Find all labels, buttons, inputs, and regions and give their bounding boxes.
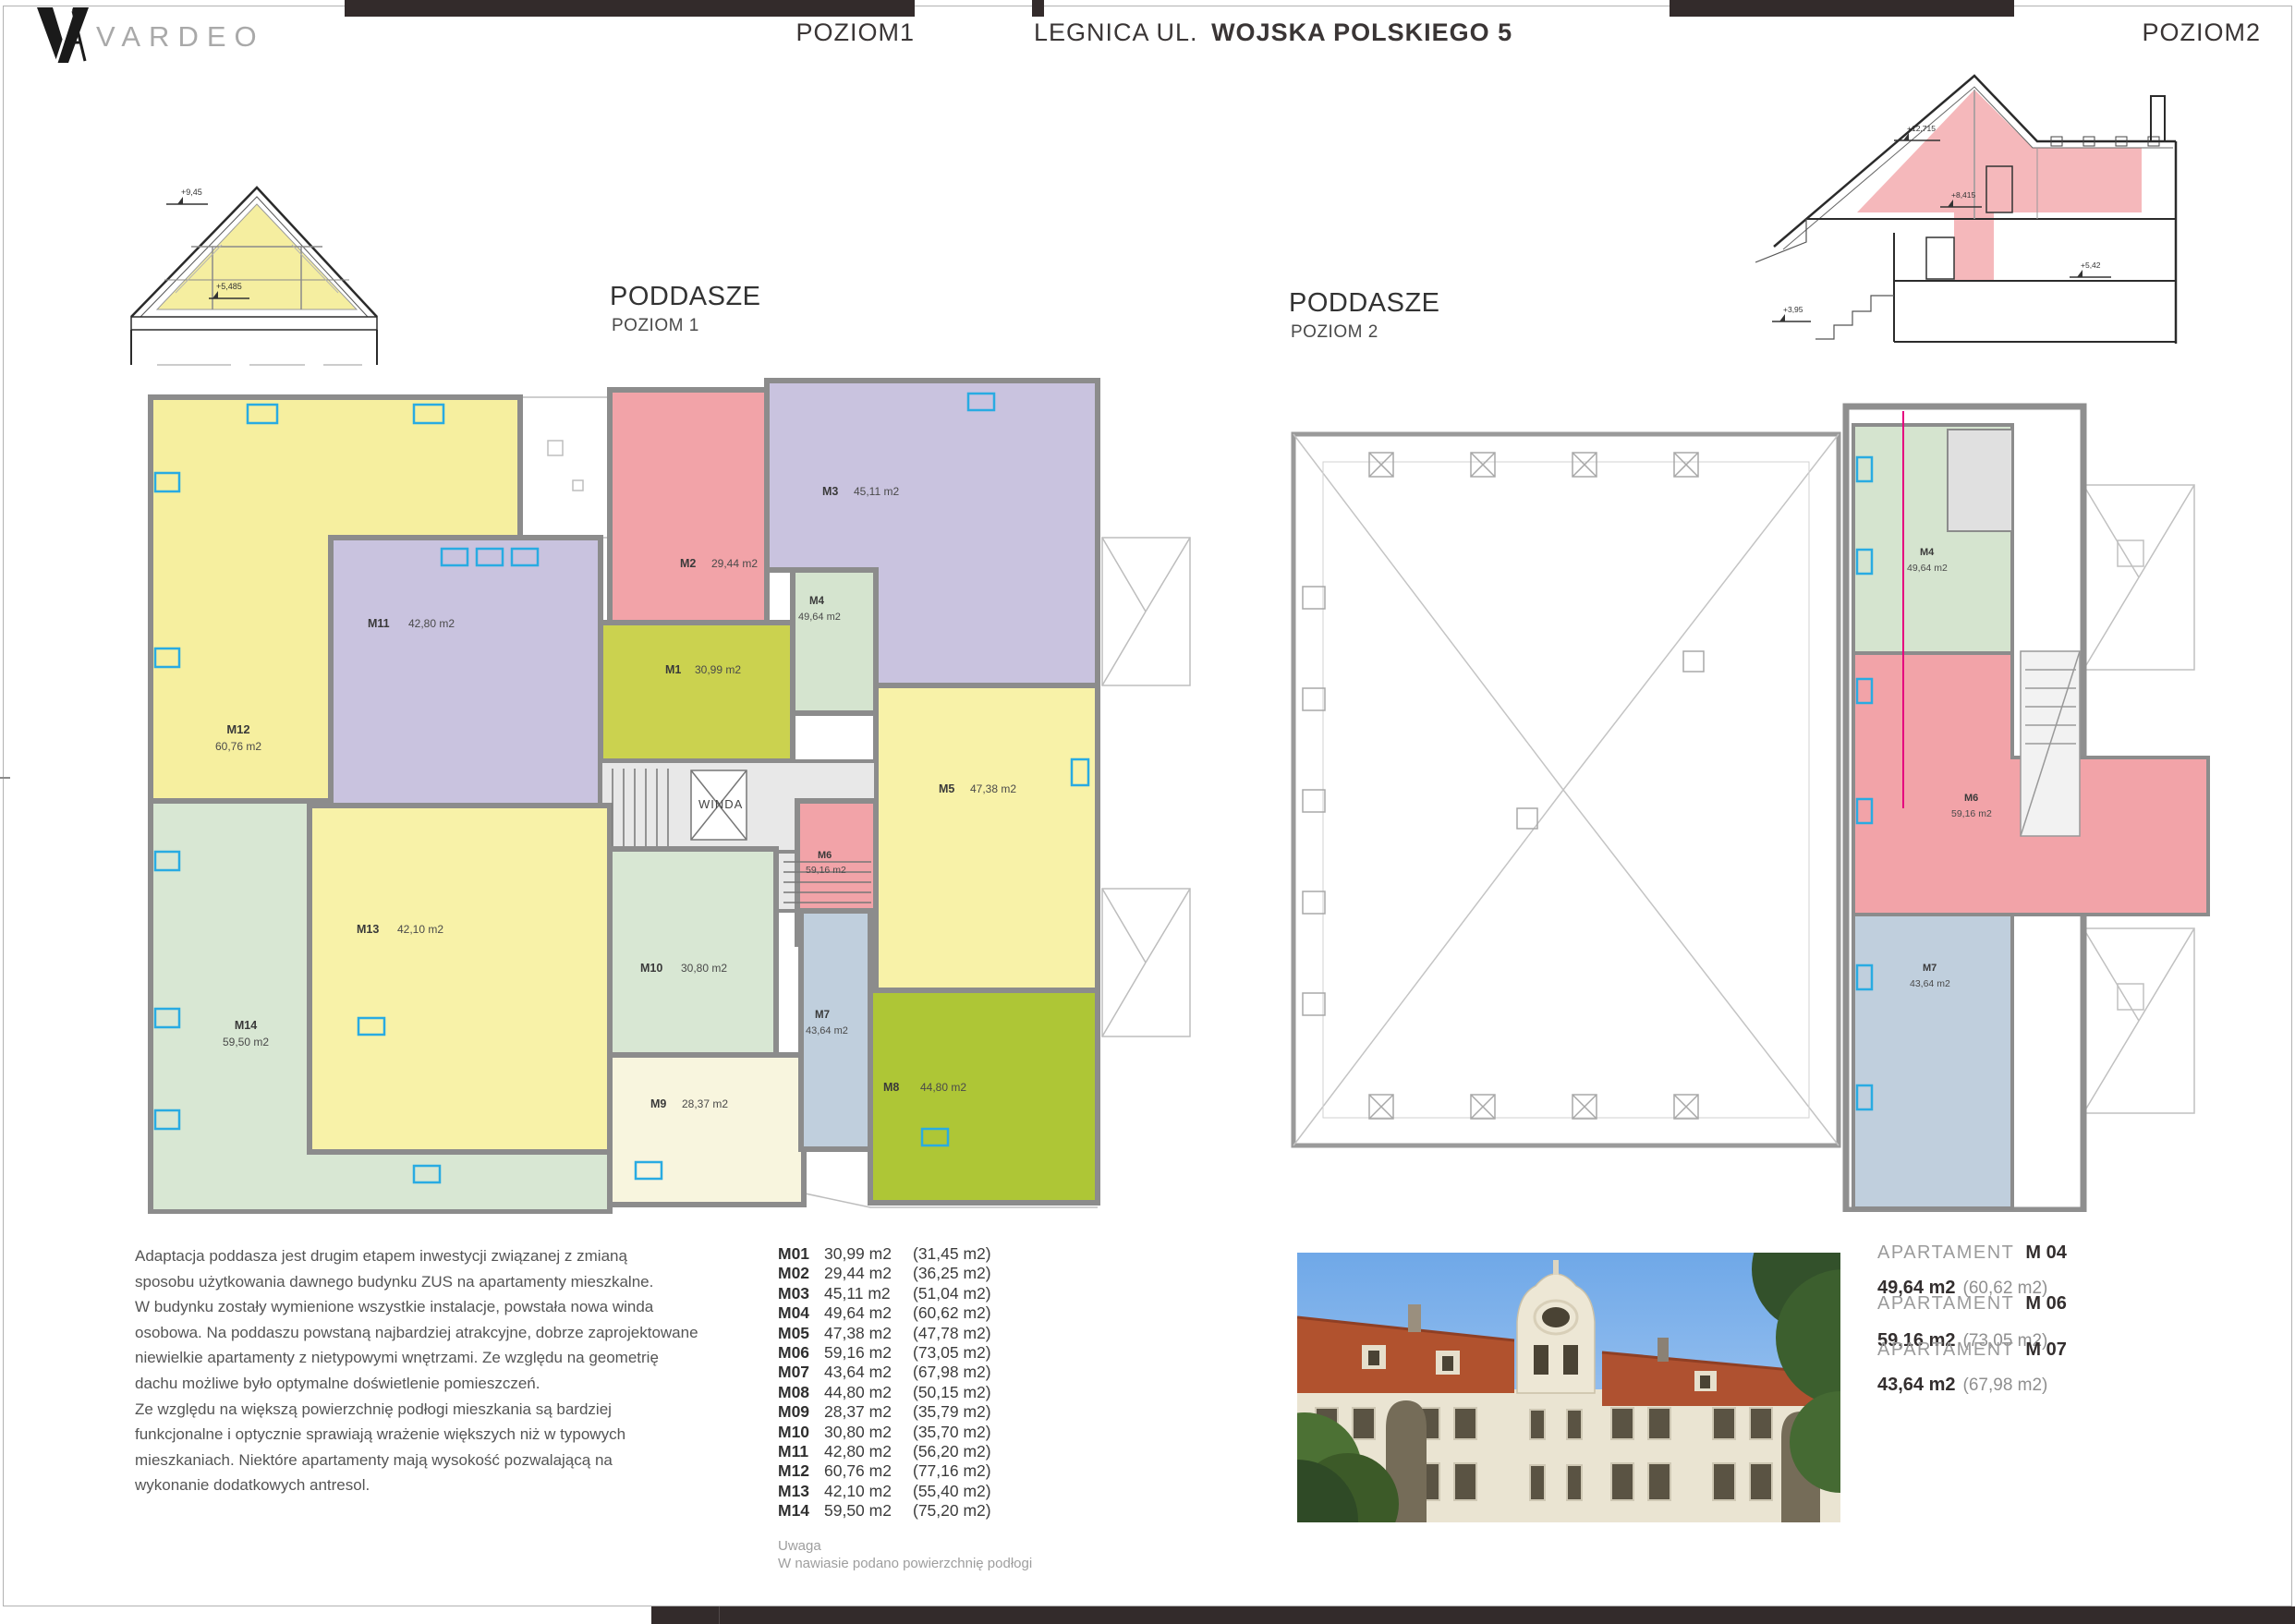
- brand-text: VARDEO: [96, 20, 265, 54]
- building-photo: [1297, 1253, 1840, 1522]
- plan1-subtitle: POZIOM 1: [612, 316, 699, 336]
- svg-text:M12: M12: [226, 722, 249, 736]
- svg-text:29,44 m2: 29,44 m2: [711, 557, 758, 570]
- header-bar-right: [1670, 0, 2014, 17]
- unit-row: M0229,44 m2(36,25 m2): [778, 1264, 991, 1283]
- elevation-label: +9,45: [181, 188, 202, 197]
- svg-text:60,76 m2: 60,76 m2: [215, 740, 261, 753]
- svg-text:M9: M9: [650, 1097, 666, 1110]
- page: VARDEO POZIOM1 LEGNICA UL. WOJSKA POLSKI…: [0, 0, 2295, 1624]
- svg-text:M7: M7: [815, 1010, 830, 1021]
- svg-text:30,80 m2: 30,80 m2: [681, 962, 727, 975]
- unit-row: M1142,80 m2(56,20 m2): [778, 1442, 991, 1461]
- level-right-label: POZIOM2: [2076, 18, 2261, 47]
- unit-row: M0449,64 m2(60,62 m2): [778, 1303, 991, 1323]
- plan1-title: PODDASZE: [610, 282, 761, 312]
- unit-row: M1260,76 m2(77,16 m2): [778, 1461, 991, 1481]
- svg-text:43,64 m2: 43,64 m2: [1910, 978, 1950, 989]
- svg-text:M5: M5: [939, 782, 954, 795]
- featured-area: 43,64 m2(67,98 m2): [1877, 1375, 2047, 1396]
- unit-row: M0844,80 m2(50,15 m2): [778, 1383, 991, 1402]
- level-left-label: POZIOM1: [730, 18, 915, 47]
- svg-text:M13: M13: [357, 923, 379, 936]
- apartment-m7-l2: [1853, 915, 2012, 1208]
- elevation-label: +8,415: [1951, 190, 1976, 200]
- svg-text:M4: M4: [1920, 547, 1935, 558]
- apartment-m11: [331, 538, 601, 806]
- svg-text:M11: M11: [368, 617, 390, 630]
- apartment-m4: [793, 570, 876, 713]
- floor-plan-level1: M12 60,76 m2 M11 42,80 m2 M2 29,44 m2 M3…: [137, 371, 1199, 1214]
- svg-text:42,80 m2: 42,80 m2: [408, 617, 455, 630]
- unit-row: M1030,80 m2(35,70 m2): [778, 1423, 991, 1442]
- header-bar-left: [345, 0, 915, 17]
- svg-text:M3: M3: [822, 485, 838, 498]
- plan2-subtitle: POZIOM 2: [1291, 322, 1378, 343]
- footer-bar-seam: [719, 1606, 720, 1624]
- svg-text:M8: M8: [883, 1081, 899, 1094]
- bathroom-block: [1948, 430, 2012, 531]
- description-paragraph: Adaptacja poddasza jest drugim etapem in…: [135, 1243, 782, 1498]
- header-square: [1032, 0, 1044, 17]
- apartment-m10: [610, 849, 776, 1055]
- apartment-m1: [601, 623, 793, 761]
- svg-text:44,80 m2: 44,80 m2: [920, 1081, 966, 1094]
- svg-text:M7: M7: [1923, 963, 1937, 974]
- apartment-m2: [610, 390, 767, 623]
- footer-bar: [651, 1606, 2295, 1624]
- apartment-m5: [876, 685, 1098, 990]
- unit-list: M0130,99 m2(31,45 m2) M0229,44 m2(36,25 …: [778, 1244, 991, 1521]
- elevation-label: +5,485: [216, 282, 242, 291]
- svg-text:M10: M10: [640, 962, 662, 975]
- unit-row: M1459,50 m2(75,20 m2): [778, 1501, 991, 1521]
- elevation-label: +5,42: [2081, 261, 2101, 270]
- svg-text:43,64 m2: 43,64 m2: [806, 1025, 848, 1036]
- cross-section-level2: +12,715 +8,415 +5,42 +3,95: [1755, 48, 2190, 362]
- featured-title: APARTAMENTM 04: [1877, 1242, 2067, 1264]
- vardeo-logo-icon: [37, 7, 89, 63]
- apartment-m13: [310, 806, 610, 1152]
- address-regular: LEGNICA UL.: [1034, 18, 1198, 46]
- apartment-m8: [870, 990, 1098, 1203]
- featured-title: APARTAMENTM 06: [1877, 1293, 2067, 1315]
- elevation-label: +3,95: [1783, 305, 1803, 314]
- note-title: Uwaga: [778, 1537, 1032, 1555]
- unit-row: M0130,99 m2(31,45 m2): [778, 1244, 991, 1264]
- unit-row: M0743,64 m2(67,98 m2): [778, 1363, 991, 1382]
- unit-row: M0659,16 m2(73,05 m2): [778, 1343, 991, 1363]
- left-edge-tick: [0, 777, 10, 779]
- svg-text:M14: M14: [235, 1019, 257, 1032]
- featured-title: APARTAMENTM 07: [1877, 1339, 2067, 1361]
- svg-text:49,64 m2: 49,64 m2: [1907, 563, 1948, 574]
- svg-text:49,64 m2: 49,64 m2: [798, 612, 841, 623]
- svg-text:M6: M6: [818, 850, 832, 861]
- elevator-label: WINDA: [698, 797, 743, 811]
- plan2-title: PODDASZE: [1289, 288, 1440, 319]
- svg-text:59,16 m2: 59,16 m2: [1951, 808, 1992, 819]
- elevation-label: +12,715: [1907, 124, 1936, 133]
- unit-row: M0345,11 m2(51,04 m2): [778, 1284, 991, 1303]
- address: LEGNICA UL. WOJSKA POLSKIEGO 5: [1034, 18, 1512, 47]
- apartment-m9: [610, 1055, 804, 1205]
- svg-text:45,11 m2: 45,11 m2: [854, 485, 899, 498]
- svg-text:M6: M6: [1964, 793, 1978, 804]
- svg-text:M4: M4: [809, 596, 825, 607]
- svg-text:47,38 m2: 47,38 m2: [970, 782, 1016, 795]
- svg-text:30,99 m2: 30,99 m2: [695, 663, 741, 676]
- svg-text:59,50 m2: 59,50 m2: [223, 1036, 269, 1048]
- note: Uwaga W nawiasie podano powierzchnię pod…: [778, 1537, 1032, 1572]
- svg-text:M1: M1: [665, 663, 681, 676]
- address-bold: WOJSKA POLSKIEGO 5: [1211, 18, 1512, 46]
- svg-text:M2: M2: [680, 557, 696, 570]
- svg-text:28,37 m2: 28,37 m2: [682, 1097, 728, 1110]
- note-text: W nawiasie podano powierzchnię podłogi: [778, 1555, 1032, 1572]
- floor-plan-level2: M4 49,64 m2 M6 59,16 m2 M7 43,64 m2: [1286, 374, 2210, 1212]
- unit-row: M0547,38 m2(47,78 m2): [778, 1324, 991, 1343]
- cross-section-level1: +9,45 +5,485: [120, 180, 388, 370]
- unit-row: M1342,10 m2(55,40 m2): [778, 1482, 991, 1501]
- svg-text:59,16 m2: 59,16 m2: [806, 865, 846, 876]
- stairwell-l2: [2021, 651, 2080, 836]
- svg-text:42,10 m2: 42,10 m2: [397, 923, 443, 936]
- unit-row: M0928,37 m2(35,79 m2): [778, 1402, 991, 1422]
